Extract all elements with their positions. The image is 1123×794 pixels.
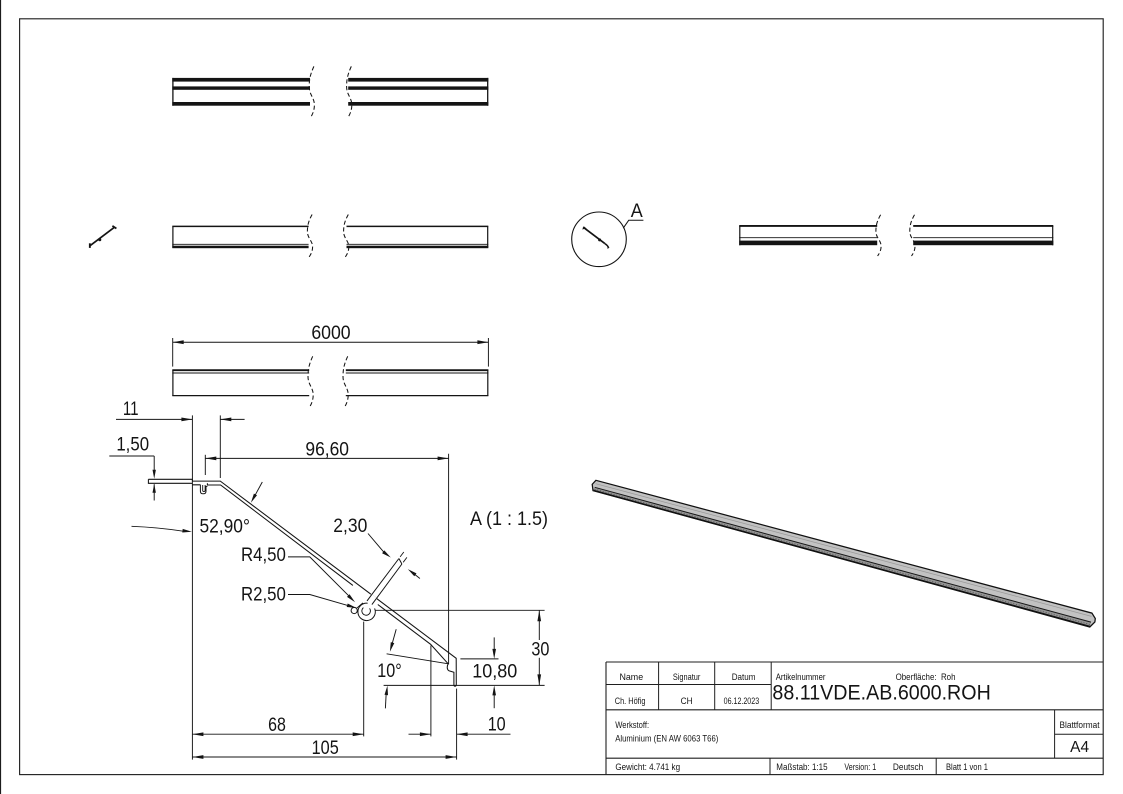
svg-text:10°: 10° (377, 661, 401, 682)
svg-text:30: 30 (531, 640, 549, 661)
svg-text:Datum: Datum (732, 672, 756, 683)
svg-text:6000: 6000 (311, 323, 350, 344)
svg-text:Werkstoff:: Werkstoff: (615, 720, 649, 731)
svg-text:1,50: 1,50 (116, 435, 149, 456)
svg-text:11: 11 (123, 399, 139, 420)
svg-text:68: 68 (268, 715, 286, 736)
svg-text:A: A (631, 201, 643, 222)
svg-text:A4: A4 (1070, 739, 1089, 756)
svg-text:CH: CH (681, 696, 693, 707)
svg-text:Version: 1: Version: 1 (844, 762, 876, 773)
svg-text:R2,50: R2,50 (241, 585, 286, 606)
svg-text:2,30: 2,30 (333, 516, 367, 537)
svg-text:A (1 : 1.5): A (1 : 1.5) (470, 509, 548, 530)
svg-text:Aluminium (EN AW 6063 T66): Aluminium (EN AW 6063 T66) (615, 734, 718, 745)
svg-text:Name: Name (619, 672, 643, 683)
svg-text:Blatt 1 von 1: Blatt 1 von 1 (946, 762, 988, 773)
svg-text:Blattformat: Blattformat (1060, 720, 1100, 731)
svg-text:88.11VDE.AB.6000.ROH: 88.11VDE.AB.6000.ROH (772, 682, 990, 705)
svg-text:06.12.2023: 06.12.2023 (724, 696, 760, 707)
svg-text:Maßstab: 1:15: Maßstab: 1:15 (776, 762, 827, 773)
svg-text:Signatur: Signatur (673, 672, 701, 683)
svg-text:R4,50: R4,50 (241, 545, 286, 566)
svg-text:10,80: 10,80 (472, 662, 517, 683)
svg-text:Deutsch: Deutsch (893, 762, 923, 773)
svg-text:10: 10 (488, 714, 506, 735)
svg-text:52,90°: 52,90° (200, 516, 250, 537)
svg-text:Gewicht: 4.741 kg: Gewicht: 4.741 kg (615, 762, 680, 773)
svg-text:96,60: 96,60 (305, 440, 349, 461)
svg-text:105: 105 (312, 738, 339, 759)
svg-text:Ch. Höfig: Ch. Höfig (615, 696, 646, 707)
